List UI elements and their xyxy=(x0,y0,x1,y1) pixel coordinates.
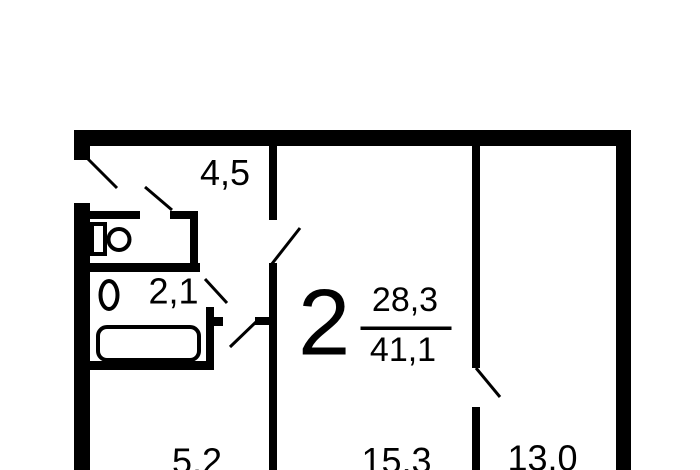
svg-text:5,2: 5,2 xyxy=(172,441,222,470)
svg-text:4,5: 4,5 xyxy=(200,152,250,193)
svg-text:2: 2 xyxy=(298,269,350,374)
svg-text:13.0: 13.0 xyxy=(507,438,577,470)
svg-text:41,1: 41,1 xyxy=(370,331,436,369)
svg-text:15,3: 15,3 xyxy=(361,440,431,470)
svg-text:28,3: 28,3 xyxy=(372,281,438,319)
svg-text:2,1: 2,1 xyxy=(148,271,198,312)
